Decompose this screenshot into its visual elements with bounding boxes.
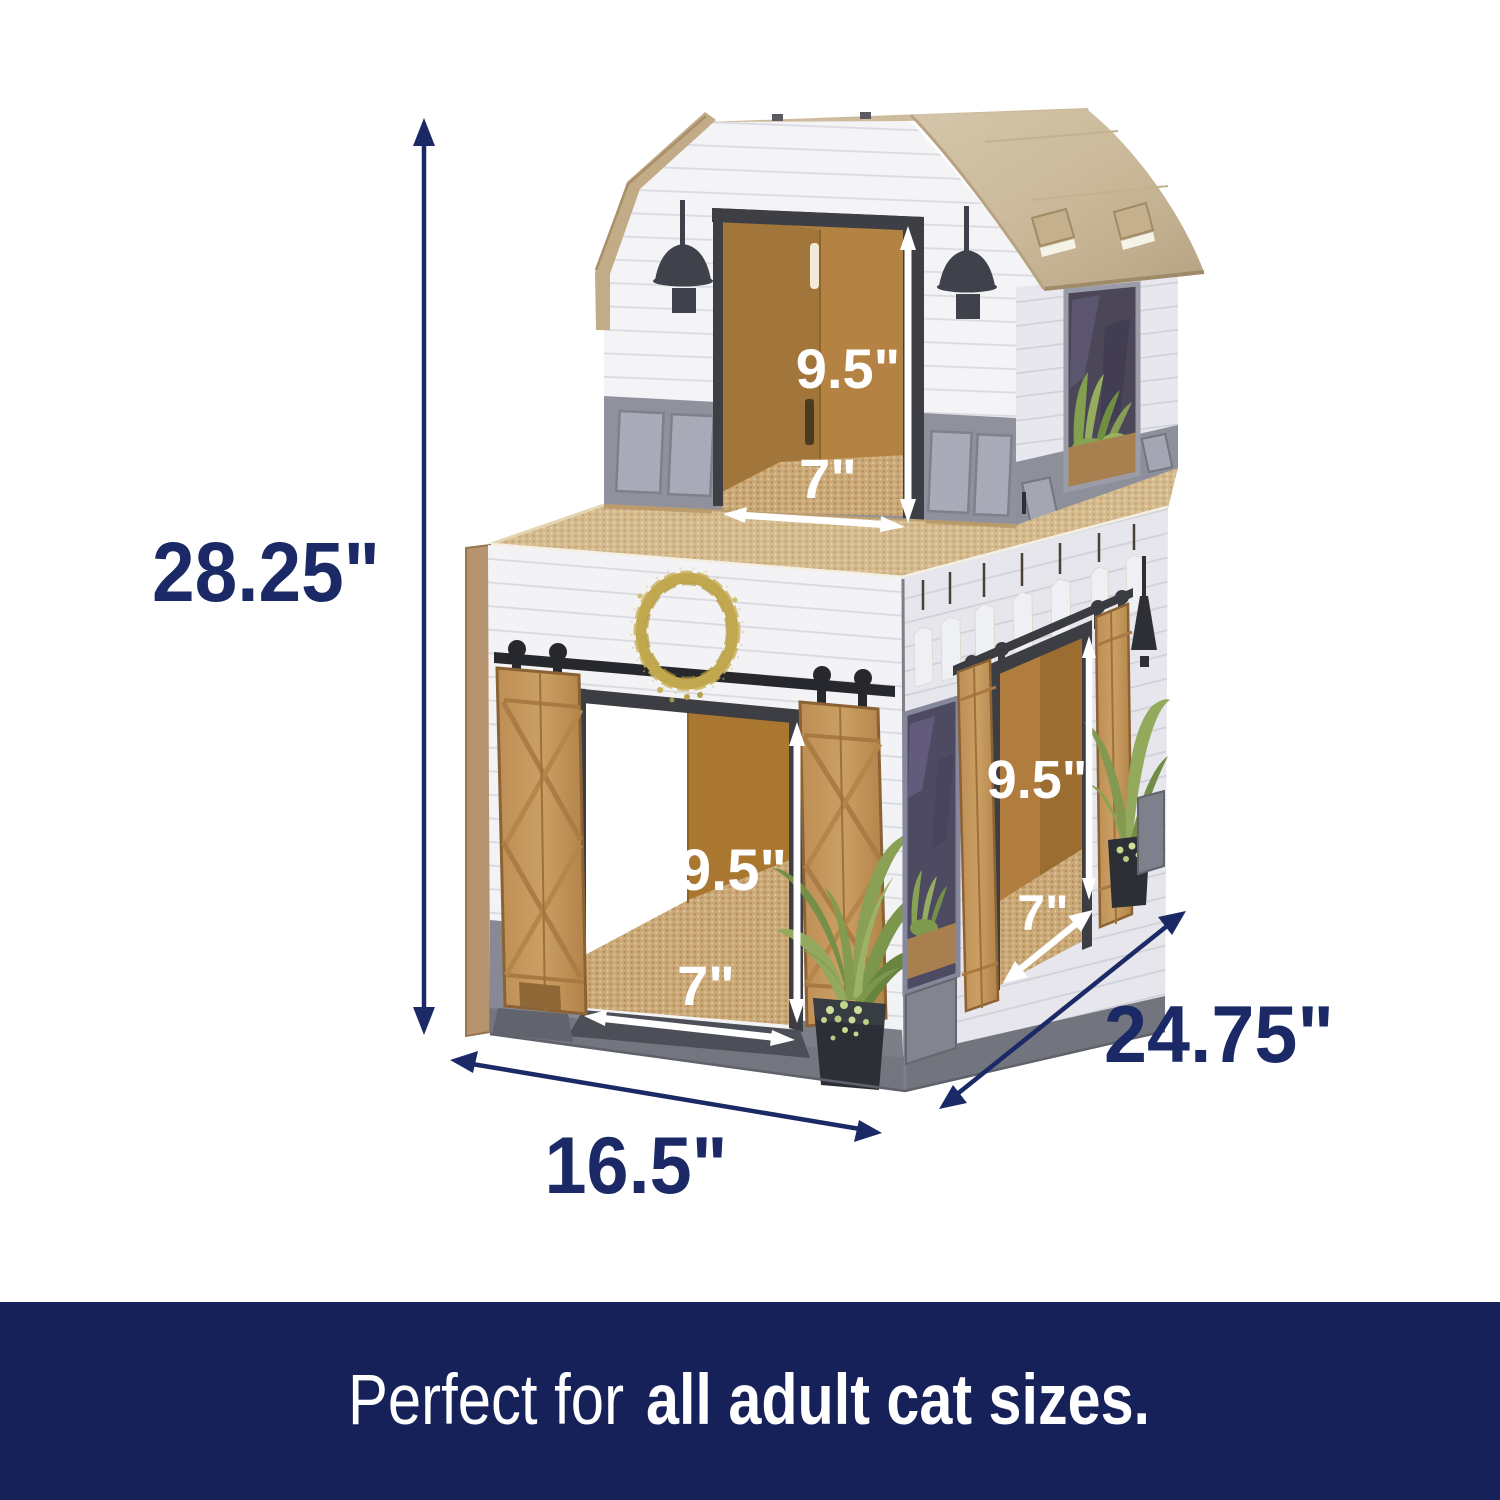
svg-text:24.75": 24.75" [1104, 990, 1334, 1080]
svg-text:7": 7" [677, 954, 735, 1017]
svg-text:9.5": 9.5" [987, 750, 1088, 810]
svg-text:7": 7" [1017, 885, 1069, 941]
svg-text:7": 7" [799, 447, 857, 510]
svg-text:28.25": 28.25" [152, 525, 380, 619]
svg-text:9.5": 9.5" [796, 337, 900, 400]
svg-text:16.5": 16.5" [545, 1121, 728, 1211]
svg-text:all adult cat sizes.: all adult cat sizes. [646, 1361, 1150, 1440]
svg-text:9.5": 9.5" [679, 838, 787, 903]
svg-text:Perfect for: Perfect for [348, 1361, 624, 1440]
